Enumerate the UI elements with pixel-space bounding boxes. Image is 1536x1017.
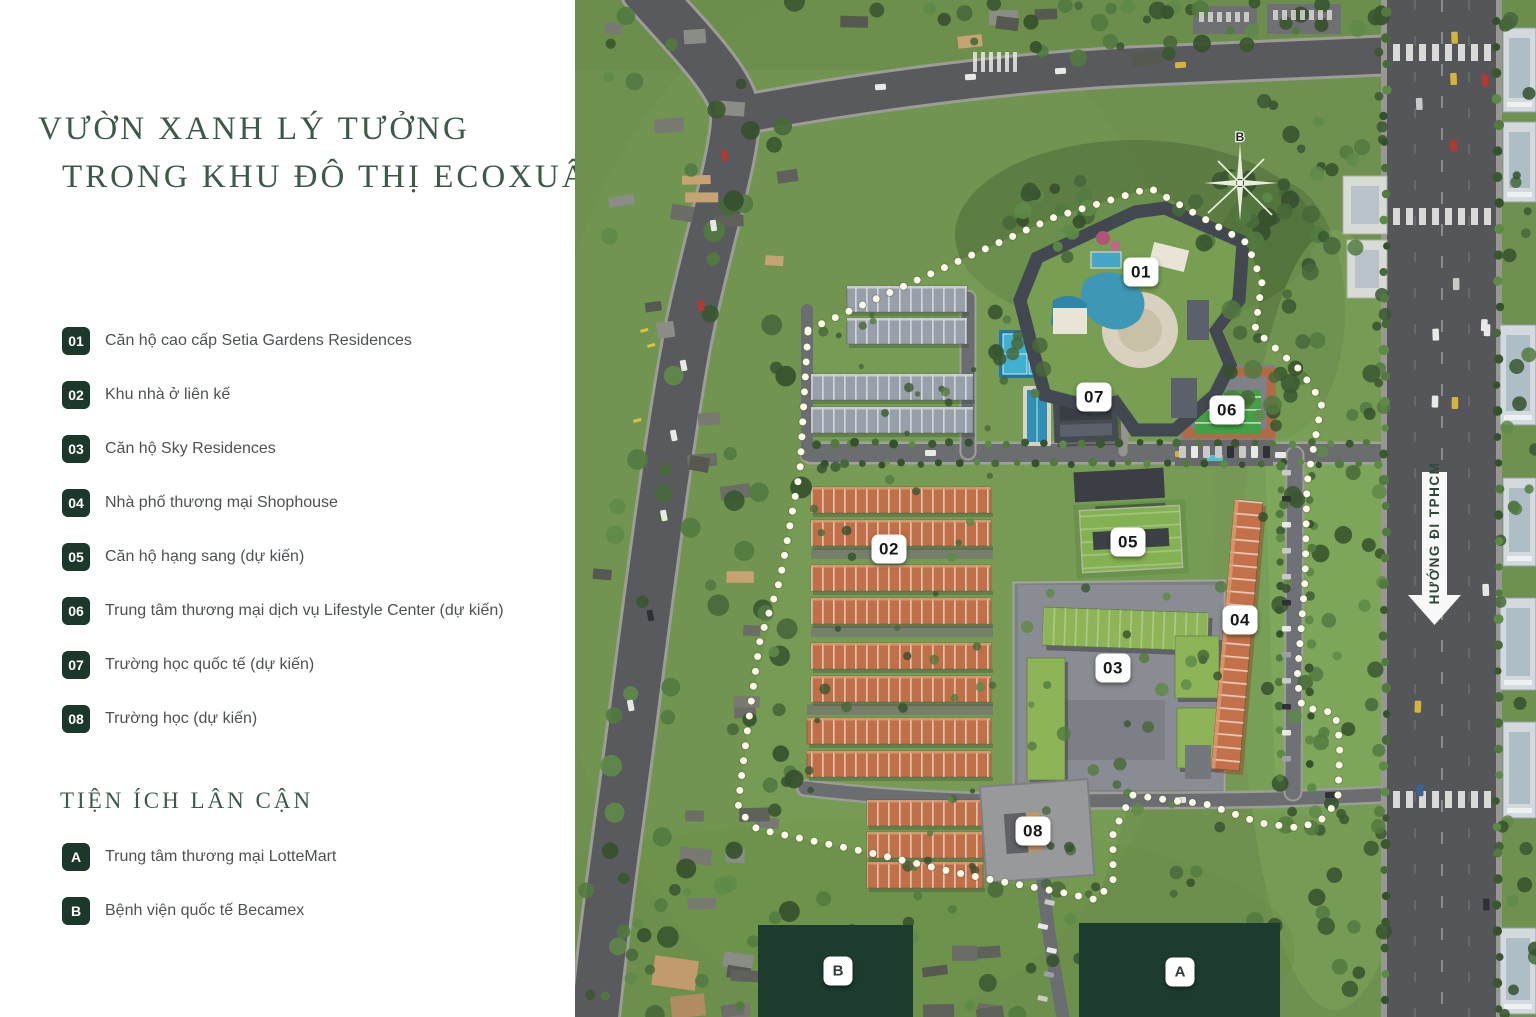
legend-badge-08: 08 [62,705,90,733]
legend-item-05: 05Căn hộ hạng sang (dự kiến) [62,543,504,571]
legend-badge-03: 03 [62,435,90,463]
legend-label-08: Trường học (dự kiến) [105,710,257,728]
legend-item-02: 02Khu nhà ở liên kế [62,381,504,409]
legend-label-02: Khu nhà ở liên kế [105,386,230,404]
legend-item-08: 08Trường học (dự kiến) [62,705,504,733]
direction-arrow-label: HƯỚNG ĐI TPHCM [1427,462,1442,605]
legend-item-07: 07Trường học quốc tế (dự kiến) [62,651,504,679]
legend-badge-02: 02 [62,381,90,409]
map-area-label-B: B [824,957,853,986]
masterplan-render: B HƯỚNG ĐI TPHCM [575,0,1536,1017]
map-marker-05: 05 [1111,528,1146,557]
page-title-line2: TRONG KHU ĐÔ THỊ ECOXUÂN [62,154,616,202]
legend-label-01: Căn hộ cao cấp Setia Gardens Residences [105,332,412,350]
legend-list: 01Căn hộ cao cấp Setia Gardens Residence… [62,327,504,759]
legend-label-03: Căn hộ Sky Residences [105,440,276,458]
legend-item-04: 04Nhà phố thương mại Shophouse [62,489,504,517]
legend-label-06: Trung tâm thương mại dịch vụ Lifestyle C… [105,602,504,620]
legend-badge-05: 05 [62,543,90,571]
map-marker-02: 02 [872,535,907,564]
legend-label-05: Căn hộ hạng sang (dự kiến) [105,548,304,566]
map-marker-07: 07 [1077,383,1112,412]
masterplan-map: B HƯỚNG ĐI TPHCM 0102030405060708AB [575,0,1536,1017]
page-title-line1: VƯỜN XANH LÝ TƯỞNG [38,111,470,147]
legend-badge-01: 01 [62,327,90,355]
nearby-amenities-list: ATrung tâm thương mại LotteMartBBệnh việ… [62,843,336,951]
legend-item-03: 03Căn hộ Sky Residences [62,435,504,463]
map-marker-03: 03 [1096,654,1131,683]
legend-label-A: Trung tâm thương mại LotteMart [105,848,336,866]
legend-badge-04: 04 [62,489,90,517]
map-area-label-A: A [1166,958,1195,987]
page-title: VƯỜN XANH LÝ TƯỞNG TRONG KHU ĐÔ THỊ ECOX… [38,106,616,201]
legend-badge-07: 07 [62,651,90,679]
map-marker-01: 01 [1124,258,1159,287]
legend-item-06: 06Trung tâm thương mại dịch vụ Lifestyle… [62,597,504,625]
brochure-page: VƯỜN XANH LÝ TƯỞNG TRONG KHU ĐÔ THỊ ECOX… [0,0,1536,1017]
nearby-amenities-title: TIỆN ÍCH LÂN CẬN [60,788,313,814]
map-marker-04: 04 [1223,606,1258,635]
compass-north-label: B [1236,130,1245,144]
legend-badge-A: A [62,843,90,871]
map-marker-06: 06 [1210,396,1245,425]
legend-item-01: 01Căn hộ cao cấp Setia Gardens Residence… [62,327,504,355]
nearby-item-A: ATrung tâm thương mại LotteMart [62,843,336,871]
map-marker-08: 08 [1016,817,1051,846]
legend-label-07: Trường học quốc tế (dự kiến) [105,656,314,674]
legend-label-B: Bệnh viện quốc tế Becamex [105,902,304,920]
legend-badge-06: 06 [62,597,90,625]
legend-panel: VƯỜN XANH LÝ TƯỞNG TRONG KHU ĐÔ THỊ ECOX… [0,0,575,1017]
legend-label-04: Nhà phố thương mại Shophouse [105,494,338,512]
nearby-item-B: BBệnh viện quốc tế Becamex [62,897,336,925]
legend-badge-B: B [62,897,90,925]
